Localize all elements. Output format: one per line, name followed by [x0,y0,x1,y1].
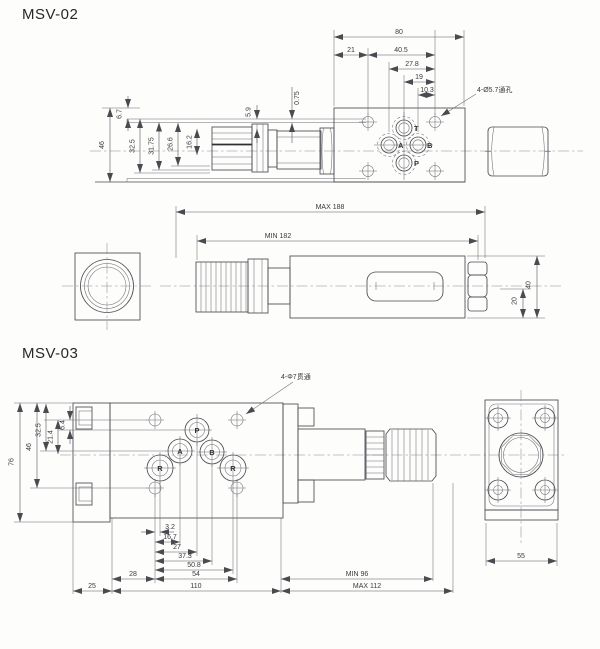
msv03-foot-block [73,403,110,522]
msv02-hex-nut-plan [485,127,551,176]
msv03-left-dimensions: 76 46 32.5 21.4 6.4 [9,403,184,522]
msv02-locknut [252,124,268,172]
dim-26-6: 26.6 [168,137,175,151]
dim-31-75: 31.75 [149,137,156,155]
dim-21: 21 [347,47,355,54]
msv02-port-b-label: B [427,141,433,150]
msv03-drawing: MSV-03 P [9,345,567,594]
msv02-knob [212,127,252,170]
dim-54: 54 [192,571,200,578]
dim-0-75: 0.75 [294,91,301,105]
msv03-holes-note: 4-Φ7贯通 [281,372,311,381]
dim-21-4: 21.4 [48,430,55,444]
dim-50-8: 50.8 [187,562,201,569]
dim-27-8: 27.8 [405,61,419,68]
msv03-port-a-label: A [177,447,183,456]
msv03-port-p-label: P [194,426,199,435]
dim-46: 46 [99,141,106,149]
dim-110: 110 [190,583,201,590]
dim-min-182: MIN 182 [265,233,292,240]
dim-55: 55 [517,553,525,560]
msv03-port-r2-label: R [230,464,236,473]
msv03-cylinder [298,429,365,480]
dim-3-2: 3.2 [165,524,175,531]
msv02-port-p-label: P [414,159,419,168]
dim-46b: 46 [26,443,33,451]
msv02-port-a-label: A [398,141,404,150]
msv03-end-view: 55 [485,390,558,566]
dim-19: 19 [415,74,423,81]
msv02-valve-body [290,256,465,318]
msv02-end-view [62,243,152,330]
msv02-front-dimensions: MAX 188 MIN 182 20 40 [176,204,545,318]
dim-16-2: 16.2 [187,135,194,149]
dim-5-9: 5.9 [246,107,253,117]
dim-76: 76 [9,458,16,466]
msv02-plan-view: T A B P [334,108,551,182]
dim-40: 40 [526,281,533,289]
dim-max-112: MAX 112 [353,583,381,590]
dim-28: 28 [129,571,137,578]
dim-80: 80 [395,29,403,36]
dim-25: 25 [88,583,96,590]
msv03-end-view-holes [485,405,558,503]
msv02-front-knob [196,262,248,312]
dim-6-7: 6.7 [117,109,124,119]
dim-32-5: 32.5 [130,139,137,153]
msv02-top-dimensions: 80 21 40.5 27.8 19 10.3 4-Ø5.7通孔 [334,29,512,132]
dim-32-5b: 32.5 [36,423,43,437]
msv03-title: MSV-03 [22,345,78,362]
drawing-canvas: MSV-02 [0,0,600,649]
valve-dimension-sheet: MSV-02 [0,0,600,649]
dim-min-96: MIN 96 [346,571,369,578]
dim-20: 20 [512,297,519,305]
msv02-body-slot [367,272,443,301]
msv03-bottom-dimensions: 3.2 16.7 27 37.3 50.8 54 28 MIN 96 25 11… [73,443,453,594]
dim-16-7: 16.7 [163,534,177,541]
msv02-drawing: MSV-02 [22,6,583,330]
msv02-hex-nut-front [468,262,487,311]
dim-6-4: 6.4 [60,420,67,430]
dim-max-188: MAX 188 [316,204,345,211]
msv03-main-view: P A B R R 4-Φ7贯通 [73,372,436,522]
msv02-left-dimensions: 46 32.5 31.75 26.6 16.2 5.9 6.7 0.75 [99,87,301,182]
msv02-body-cylinder [277,131,321,169]
msv02-ports: T A B P [374,112,433,180]
dim-27: 27 [173,544,181,551]
dim-37-3: 37.3 [178,553,192,560]
msv02-holes-note: 4-Ø5.7通孔 [477,85,512,94]
msv03-mount-holes [146,411,246,497]
dim-10-3: 10.3 [420,87,434,94]
msv02-title: MSV-02 [22,6,78,23]
dim-40-5: 40.5 [394,47,408,54]
msv03-port-b-label: B [209,448,215,457]
msv03-port-r1-label: R [157,464,163,473]
